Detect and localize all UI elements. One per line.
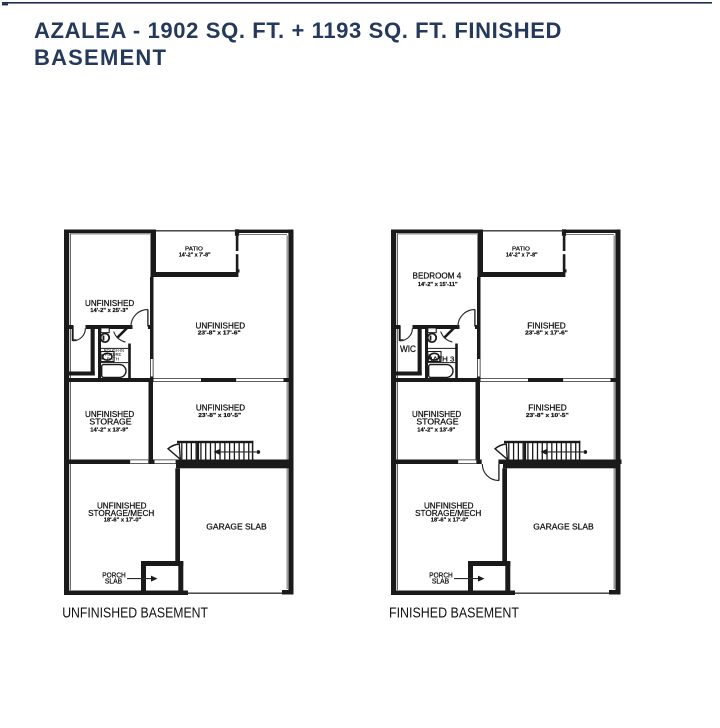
svg-text:STORAGE: STORAGE: [89, 418, 132, 427]
svg-text:23'-8" x 10'-5": 23'-8" x 10'-5": [526, 413, 570, 419]
svg-text:14'-2" x 13'-9": 14'-2" x 13'-9": [417, 428, 456, 434]
svg-text:BEDROOM 4: BEDROOM 4: [413, 272, 462, 281]
svg-text:BATH: BATH: [107, 356, 119, 361]
svg-text:14'-2" x 7'-8": 14'-2" x 7'-8": [179, 253, 211, 259]
svg-text:PATIO: PATIO: [512, 246, 530, 252]
svg-text:14'-2" x 13'-9": 14'-2" x 13'-9": [90, 428, 129, 434]
svg-text:18'-6" x 17'-0": 18'-6" x 17'-0": [431, 517, 469, 523]
svg-text:AZALEA - 1902 SQ. FT. + 1193 S: AZALEA - 1902 SQ. FT. + 1193 SQ. FT. FIN…: [34, 18, 561, 43]
svg-text:14'-2" x 15'-11": 14'-2" x 15'-11": [418, 282, 458, 288]
svg-text:14'-2" x 25'-3": 14'-2" x 25'-3": [90, 308, 129, 314]
svg-text:FINISHED: FINISHED: [527, 321, 566, 330]
svg-text:UNFINISHED: UNFINISHED: [196, 321, 246, 330]
svg-text:SLAB: SLAB: [105, 576, 122, 585]
svg-text:SLAB: SLAB: [432, 576, 449, 585]
svg-text:GARAGE SLAB: GARAGE SLAB: [533, 522, 594, 532]
svg-text:UNFINISHED: UNFINISHED: [85, 299, 134, 308]
svg-text:BASEMENT: BASEMENT: [34, 45, 166, 70]
svg-text:PATIO: PATIO: [185, 246, 203, 252]
svg-text:18'-6" x 17'-0": 18'-6" x 17'-0": [104, 517, 142, 523]
svg-text:14'-2" x 7'-8": 14'-2" x 7'-8": [506, 253, 538, 259]
svg-text:FINISHED BASEMENT: FINISHED BASEMENT: [389, 606, 519, 622]
svg-text:UNFINISHED BASEMENT: UNFINISHED BASEMENT: [62, 606, 208, 622]
svg-text:GARAGE SLAB: GARAGE SLAB: [206, 522, 267, 532]
svg-text:BATH 3: BATH 3: [427, 355, 454, 364]
svg-text:STORAGE: STORAGE: [416, 418, 459, 427]
svg-text:UNFINISHED: UNFINISHED: [196, 403, 245, 412]
svg-text:23'-8" x 17'-6": 23'-8" x 17'-6": [198, 330, 242, 336]
svg-text:WIC: WIC: [400, 344, 416, 354]
svg-text:23'-8" x 17'-6": 23'-8" x 17'-6": [525, 330, 569, 336]
svg-text:FINISHED: FINISHED: [528, 403, 567, 412]
svg-text:23'-8" x 10'-5": 23'-8" x 10'-5": [198, 413, 242, 419]
